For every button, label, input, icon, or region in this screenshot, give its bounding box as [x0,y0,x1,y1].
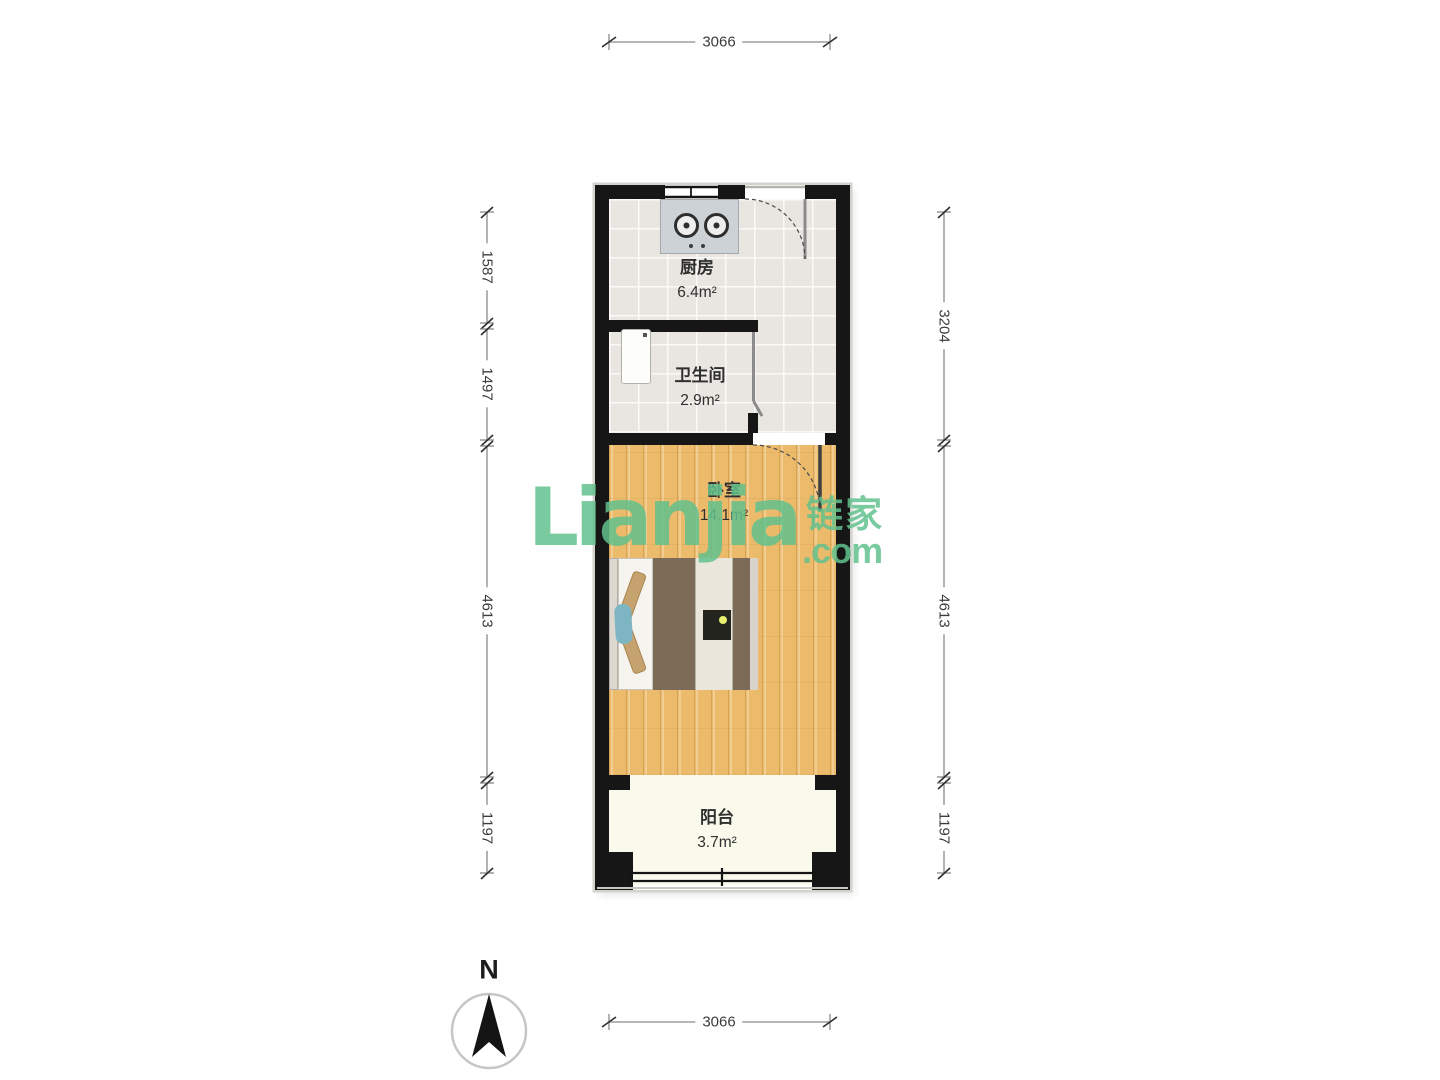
room-label-bathroom: 卫生间 2.9m² [675,363,726,412]
room-name: 卧室 [700,478,748,504]
room-name: 卫生间 [675,363,726,389]
room-label-kitchen: 厨房 6.4m² [677,255,717,304]
dimension-label-left-3: 4613 [478,587,497,634]
dimension-label-right-3: 1197 [935,805,954,851]
dimension-label-right-1: 3204 [935,302,954,349]
compass [452,994,526,1068]
balcony-window [631,868,814,886]
bedroom-door [753,445,820,512]
dimension-label-right-2: 4613 [935,587,954,634]
room-area: 2.9m² [675,389,726,412]
room-label-balcony: 阳台 3.7m² [697,805,737,854]
room-name: 厨房 [677,255,717,281]
dimension-line-left [480,207,494,879]
north-label: N [479,955,499,986]
room-area: 3.7m² [697,831,737,854]
floorplan: 厨房 6.4m² 卫生间 2.9m² 卧室 14.1m² 阳台 3.7m² [595,185,850,890]
room-area: 6.4m² [677,281,717,304]
dimension-label-left-2: 1497 [478,360,497,407]
dimension-label-bottom: 3066 [695,1013,742,1032]
dimension-label-top: 3066 [695,33,742,52]
dimension-label-left-1: 1587 [478,243,497,290]
room-name: 阳台 [697,805,737,831]
kitchen-window [665,185,718,199]
room-area: 14.1m² [700,504,748,527]
bathroom-door [754,332,763,416]
kitchen-entry-door [745,187,805,259]
room-label-bedroom: 卧室 14.1m² [700,478,748,527]
doors-windows-layer [595,185,850,890]
dimension-label-left-4: 1197 [478,805,497,851]
floorplan-canvas: 3066 3066 1587 1497 4613 1197 3204 4613 … [0,0,1440,1080]
